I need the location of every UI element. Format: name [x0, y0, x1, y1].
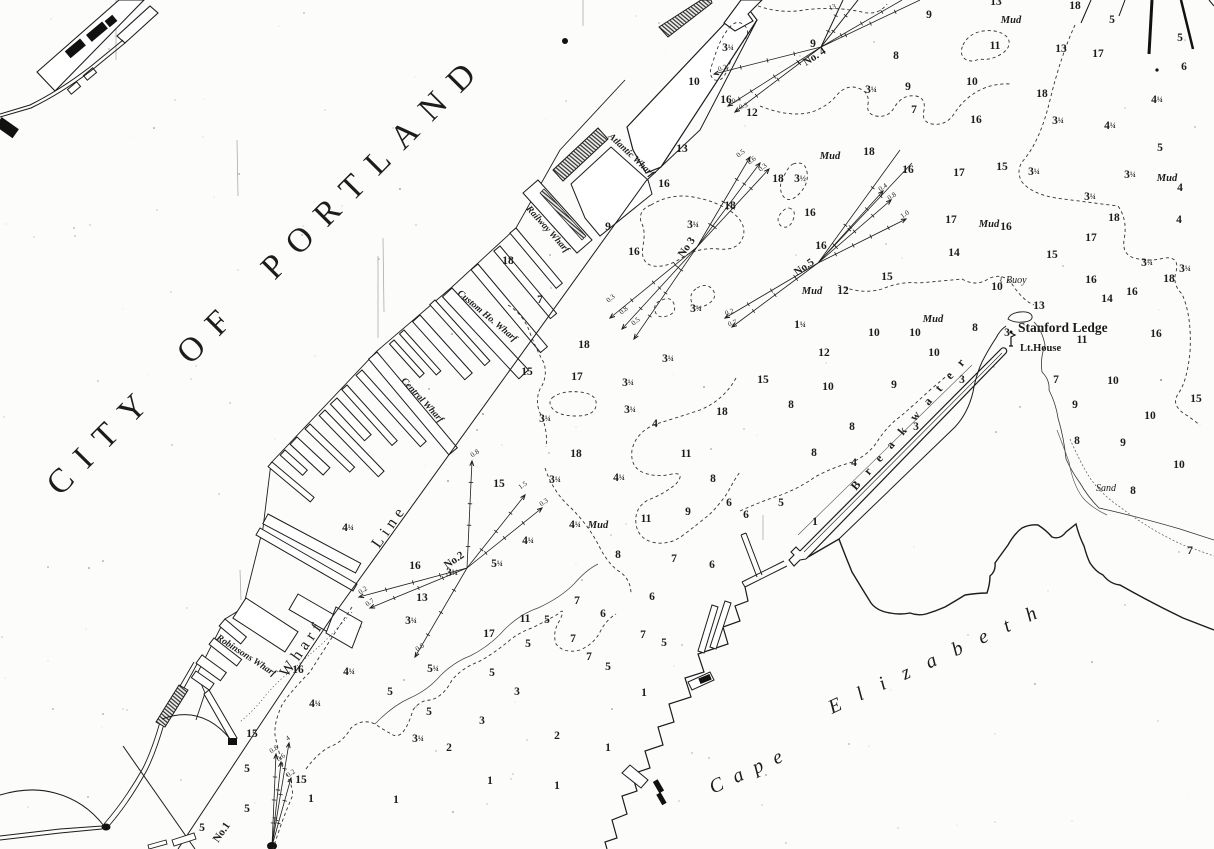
svg-text:6: 6	[1181, 61, 1187, 73]
svg-text:5: 5	[199, 822, 205, 834]
svg-text:18: 18	[1069, 0, 1081, 12]
svg-text:Mud: Mud	[978, 219, 1000, 230]
svg-text:6: 6	[600, 608, 606, 620]
svg-text:8: 8	[710, 473, 716, 485]
svg-text:17: 17	[945, 214, 957, 226]
svg-text:14: 14	[1101, 293, 1113, 305]
svg-text:3: 3	[913, 421, 919, 433]
svg-text:15: 15	[881, 271, 893, 283]
svg-text:13: 13	[416, 592, 428, 604]
svg-text:Stanford Ledge: Stanford Ledge	[1018, 320, 1108, 335]
svg-text:Mud: Mud	[922, 314, 944, 325]
svg-text:16: 16	[902, 164, 914, 176]
svg-text:18: 18	[716, 406, 728, 418]
svg-text:1: 1	[554, 780, 560, 792]
svg-text:10: 10	[822, 381, 834, 393]
svg-text:6: 6	[743, 509, 749, 521]
svg-text:4: 4	[851, 457, 857, 469]
svg-text:5: 5	[778, 497, 784, 509]
svg-text:5: 5	[1157, 142, 1163, 154]
svg-text:7: 7	[911, 104, 917, 116]
svg-text:5: 5	[244, 763, 250, 775]
svg-text:3: 3	[479, 715, 485, 727]
svg-text:9: 9	[1072, 399, 1078, 411]
svg-text:4: 4	[652, 418, 658, 430]
svg-text:15: 15	[246, 728, 258, 740]
svg-text:18: 18	[570, 448, 582, 460]
svg-text:1: 1	[812, 516, 818, 528]
svg-text:16: 16	[292, 664, 304, 676]
svg-text:8: 8	[788, 399, 794, 411]
svg-text:10: 10	[688, 76, 700, 88]
svg-text:10: 10	[868, 327, 880, 339]
svg-text:7: 7	[1053, 374, 1059, 386]
svg-text:10: 10	[928, 347, 940, 359]
svg-text:1: 1	[605, 742, 611, 754]
svg-text:1: 1	[641, 687, 647, 699]
svg-text:10: 10	[1173, 459, 1185, 471]
svg-text:2: 2	[446, 742, 452, 754]
svg-text:11: 11	[520, 613, 531, 625]
svg-text:8: 8	[615, 549, 621, 561]
svg-text:15: 15	[1046, 249, 1058, 261]
svg-text:16: 16	[1126, 286, 1138, 298]
svg-text:8: 8	[893, 50, 899, 62]
svg-text:16: 16	[1085, 274, 1097, 286]
svg-text:10: 10	[1144, 410, 1156, 422]
svg-text:16: 16	[658, 178, 670, 190]
svg-text:Mud: Mud	[819, 151, 841, 162]
svg-text:9: 9	[926, 9, 932, 21]
svg-text:Mud: Mud	[587, 520, 609, 531]
svg-text:13: 13	[1033, 300, 1045, 312]
svg-text:15: 15	[757, 374, 769, 386]
svg-text:2: 2	[554, 730, 560, 742]
svg-text:18: 18	[578, 339, 590, 351]
svg-text:6: 6	[726, 497, 732, 509]
svg-text:17: 17	[571, 371, 583, 383]
svg-text:18: 18	[772, 173, 784, 185]
svg-text:7: 7	[586, 651, 592, 663]
svg-text:16: 16	[970, 114, 982, 126]
svg-text:7: 7	[640, 629, 646, 641]
svg-text:18: 18	[1163, 273, 1175, 285]
svg-text:5: 5	[525, 638, 531, 650]
svg-text:6: 6	[649, 591, 655, 603]
svg-text:12: 12	[818, 347, 830, 359]
svg-text:Mud: Mud	[1000, 15, 1022, 26]
svg-text:18: 18	[863, 146, 875, 158]
svg-text:17: 17	[483, 628, 495, 640]
svg-text:7: 7	[1187, 545, 1193, 557]
svg-text:16: 16	[720, 94, 732, 106]
svg-text:9: 9	[905, 81, 911, 93]
svg-text:5: 5	[244, 803, 250, 815]
svg-text:13: 13	[676, 143, 688, 155]
svg-text:11: 11	[681, 448, 692, 460]
svg-text:16: 16	[804, 207, 816, 219]
svg-text:13: 13	[990, 0, 1002, 8]
svg-text:16: 16	[1150, 328, 1162, 340]
svg-text:18: 18	[724, 200, 736, 212]
svg-text:11: 11	[990, 40, 1001, 52]
svg-text:10: 10	[991, 281, 1003, 293]
svg-text:5: 5	[387, 686, 393, 698]
svg-text:5: 5	[426, 706, 432, 718]
svg-text:12: 12	[746, 107, 758, 119]
svg-text:8: 8	[972, 322, 978, 334]
svg-text:1: 1	[393, 794, 399, 806]
svg-text:13: 13	[1055, 43, 1067, 55]
svg-text:8: 8	[811, 447, 817, 459]
svg-text:16: 16	[628, 246, 640, 258]
svg-text:7: 7	[570, 633, 576, 645]
svg-text:Sand: Sand	[1096, 483, 1117, 494]
svg-text:7: 7	[671, 553, 677, 565]
svg-text:Buoy: Buoy	[1006, 275, 1027, 286]
svg-text:12: 12	[837, 285, 849, 297]
svg-text:5: 5	[605, 661, 611, 673]
svg-text:18: 18	[1036, 88, 1048, 100]
svg-text:16: 16	[815, 240, 827, 252]
svg-text:10: 10	[909, 327, 921, 339]
svg-text:9: 9	[605, 221, 611, 233]
svg-text:Mud: Mud	[801, 286, 823, 297]
svg-text:11: 11	[641, 513, 652, 525]
svg-text:18: 18	[502, 255, 514, 267]
svg-text:15: 15	[1190, 393, 1202, 405]
svg-text:10: 10	[1107, 375, 1119, 387]
svg-text:7: 7	[537, 294, 543, 306]
svg-text:9: 9	[685, 506, 691, 518]
svg-text:17: 17	[1085, 232, 1097, 244]
svg-text:8: 8	[1074, 435, 1080, 447]
svg-text:9: 9	[891, 379, 897, 391]
svg-text:8: 8	[1130, 485, 1136, 497]
svg-text:5: 5	[544, 614, 550, 626]
svg-text:15: 15	[996, 161, 1008, 173]
svg-text:4: 4	[1176, 214, 1182, 226]
svg-text:3: 3	[514, 686, 520, 698]
svg-text:5: 5	[661, 637, 667, 649]
svg-text:10: 10	[966, 76, 978, 88]
svg-text:16: 16	[409, 560, 421, 572]
svg-text:Lt.House: Lt.House	[1020, 343, 1061, 354]
svg-text:5: 5	[1109, 14, 1115, 26]
svg-text:5: 5	[1177, 32, 1183, 44]
svg-text:9: 9	[1120, 437, 1126, 449]
svg-text:15: 15	[521, 366, 533, 378]
svg-text:15: 15	[493, 478, 505, 490]
svg-text:17: 17	[1092, 48, 1104, 60]
svg-text:11: 11	[1077, 334, 1088, 346]
svg-text:15: 15	[295, 774, 307, 786]
svg-text:14: 14	[948, 247, 960, 259]
svg-text:8: 8	[849, 421, 855, 433]
svg-text:4: 4	[1177, 182, 1183, 194]
svg-text:7: 7	[574, 595, 580, 607]
svg-text:3: 3	[959, 374, 965, 386]
svg-text:18: 18	[1108, 212, 1120, 224]
svg-text:1: 1	[487, 775, 493, 787]
svg-text:5: 5	[489, 667, 495, 679]
svg-text:16: 16	[1000, 221, 1012, 233]
svg-text:17: 17	[953, 167, 965, 179]
svg-text:3: 3	[1004, 327, 1010, 339]
svg-text:6: 6	[709, 559, 715, 571]
svg-text:9: 9	[810, 38, 816, 50]
svg-text:1: 1	[308, 793, 314, 805]
svg-text:Mud: Mud	[1156, 173, 1178, 184]
